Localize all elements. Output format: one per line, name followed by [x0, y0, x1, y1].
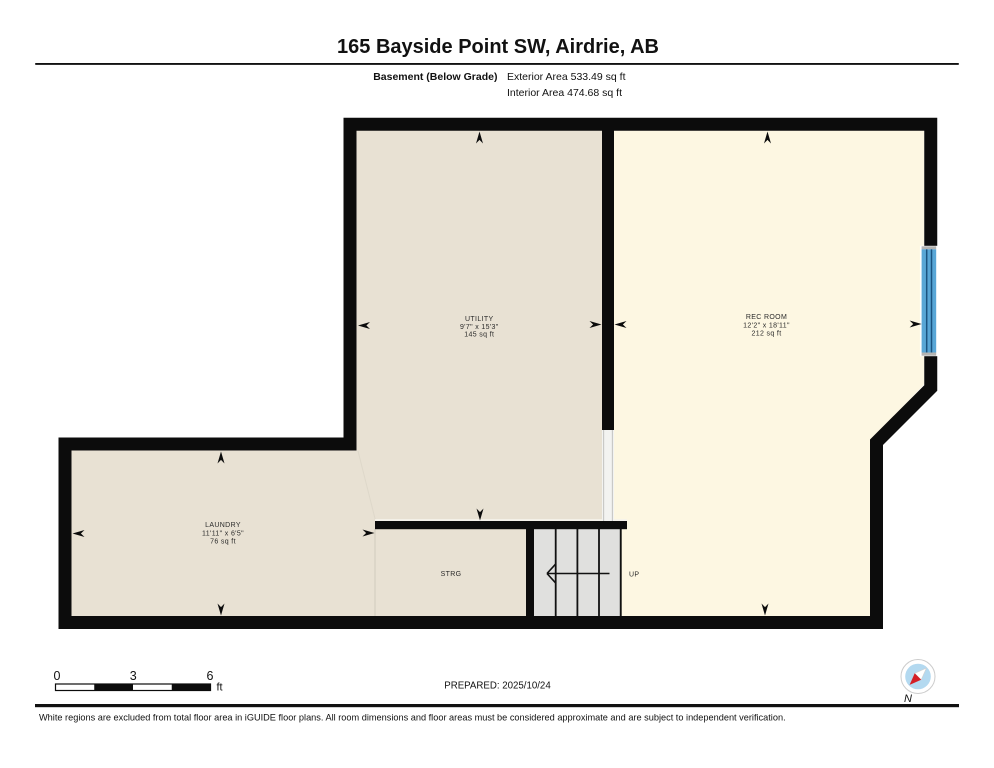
svg-text:Exterior Area 533.49 sq ft: Exterior Area 533.49 sq ft	[507, 71, 626, 83]
svg-text:Interior Area 474.68 sq ft: Interior Area 474.68 sq ft	[507, 87, 622, 99]
svg-text:LAUNDRY: LAUNDRY	[205, 522, 241, 529]
svg-text:White regions are excluded fro: White regions are excluded from total fl…	[39, 713, 786, 723]
svg-text:STRG: STRG	[441, 571, 462, 578]
svg-text:N: N	[904, 693, 912, 705]
svg-text:0: 0	[54, 669, 61, 683]
svg-text:9'7" x 15'3": 9'7" x 15'3"	[460, 324, 499, 331]
svg-text:UP: UP	[629, 572, 639, 579]
svg-text:145 sq ft: 145 sq ft	[464, 331, 494, 338]
svg-text:11'11" x 6'5": 11'11" x 6'5"	[202, 530, 244, 537]
svg-text:Basement (Below Grade): Basement (Below Grade)	[373, 71, 497, 83]
svg-text:3: 3	[130, 669, 137, 683]
svg-text:REC ROOM: REC ROOM	[746, 314, 787, 321]
svg-text:76 sq ft: 76 sq ft	[210, 539, 236, 546]
svg-text:UTILITY: UTILITY	[465, 316, 494, 323]
svg-text:12'2" x 18'11": 12'2" x 18'11"	[743, 323, 790, 330]
svg-text:ft: ft	[217, 682, 223, 694]
svg-text:212 sq ft: 212 sq ft	[751, 330, 781, 337]
svg-text:6: 6	[207, 669, 214, 683]
svg-text:PREPARED: 2025/10/24: PREPARED: 2025/10/24	[444, 681, 551, 692]
svg-text:165 Bayside Point SW, Airdrie,: 165 Bayside Point SW, Airdrie, AB	[337, 36, 659, 58]
